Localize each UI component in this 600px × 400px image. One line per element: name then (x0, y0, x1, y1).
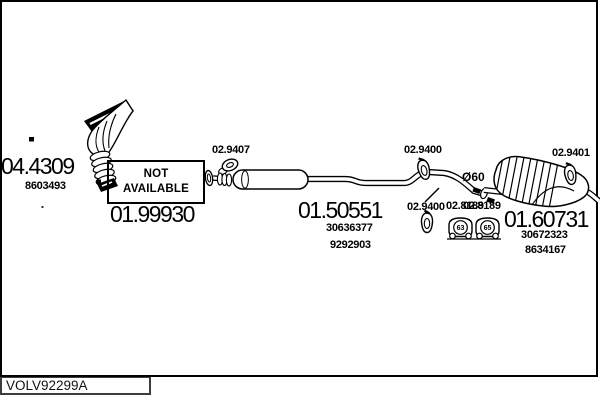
oe-number: 9292903 (330, 240, 371, 251)
label-hanger-top: 02.9400 (404, 145, 442, 156)
label-hanger-bottom: 02.9400 (407, 202, 445, 213)
part-number-rear-muffler[interactable]: 01.60731 (504, 208, 588, 231)
oe-number: 8634167 (525, 245, 566, 256)
front-flex-pipe-drawing (204, 170, 231, 186)
diagram-code-plate[interactable]: VOLV92299A (0, 377, 151, 395)
hanger-leader-line (425, 188, 439, 202)
not-available-box: NOT AVAILABLE (107, 160, 205, 204)
connection-marker (97, 180, 102, 185)
label-mount-b: 02.8189 (463, 201, 501, 212)
part-number-manifold[interactable]: 04.4309 (1, 155, 74, 178)
middle-muffler-drawing (233, 170, 308, 189)
connection-marker (29, 137, 34, 142)
pipe-diameter-note: Ø60 (462, 171, 485, 183)
rubber-hanger-drawing (421, 211, 432, 233)
mount-number-left: 63 (457, 225, 465, 232)
exhaust-diagram-page: 63 65 04.4309 8603493 NOT AVAILABLE 01.9… (0, 0, 600, 400)
part-number-middle-muffler[interactable]: 01.50551 (298, 199, 382, 222)
rear-muffler-drawing (484, 152, 599, 214)
oe-number: 30636377 (326, 223, 373, 234)
connection-dot (42, 206, 44, 208)
oe-number: 8603493 (25, 181, 66, 192)
part-number-front-pipe[interactable]: 01.99930 (110, 203, 194, 226)
not-available-line2: AVAILABLE (123, 183, 189, 196)
diagram-code: VOLV92299A (6, 378, 88, 393)
label-gasket: 02.9407 (212, 145, 250, 156)
label-hanger-rear: 02.9401 (552, 148, 590, 159)
not-available-line1: NOT (144, 168, 169, 181)
mount-number-right: 65 (484, 225, 492, 232)
oe-number: 30672323 (521, 230, 568, 241)
